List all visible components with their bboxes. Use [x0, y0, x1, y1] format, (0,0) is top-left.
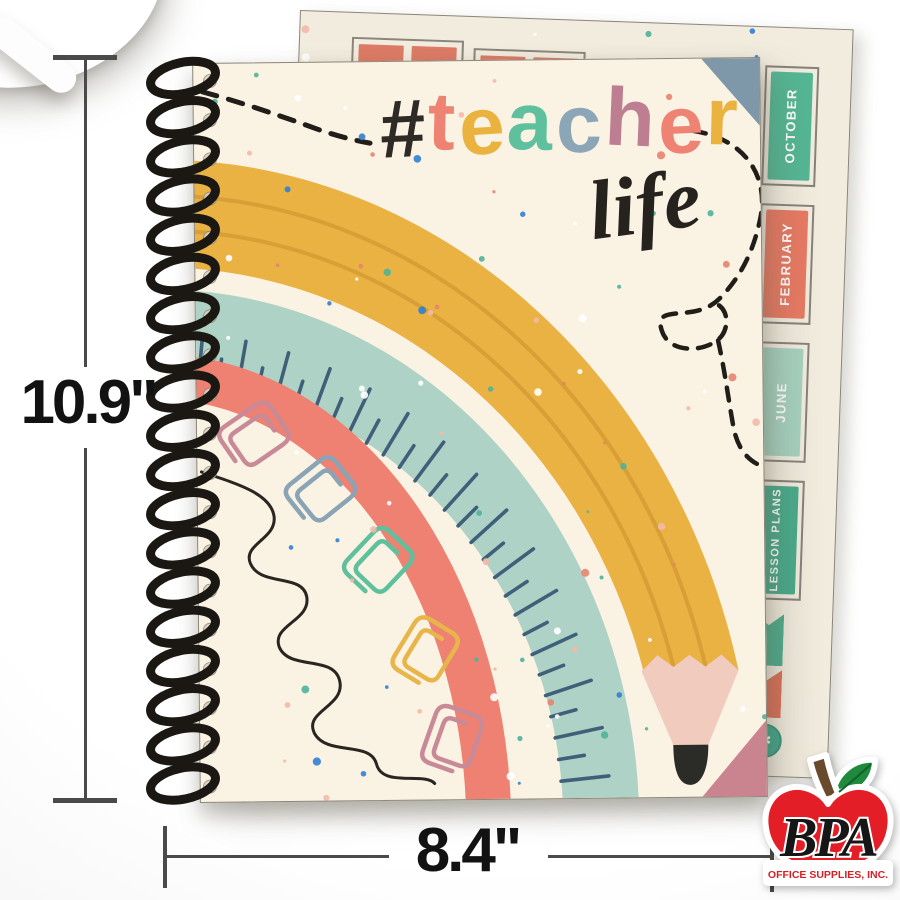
product-photo-stage: { "scene": { "description": "Spiral-boun… — [0, 0, 900, 900]
month-tab-label: LESSON PLANS — [768, 488, 784, 592]
month-tab-label: FEBRUARY — [776, 222, 794, 306]
month-tab-fill: JUNE — [758, 347, 804, 456]
height-dimension-line — [84, 448, 87, 800]
pencil-tip — [673, 745, 708, 785]
logo-tagline: OFFICE SUPPLIES, INC. — [768, 869, 888, 881]
title-letter: t — [427, 81, 456, 164]
title-letter: c — [554, 83, 603, 167]
bpa-logo: BPA OFFICE SUPPLIES, INC. — [760, 748, 896, 900]
height-dimension-line — [84, 57, 87, 367]
planner-cover: #teacher life — [192, 57, 768, 803]
width-dimension-line — [548, 855, 772, 858]
height-dimension-cap-bottom — [53, 798, 117, 803]
month-tab-fill: FEBRUARY — [763, 209, 809, 318]
month-tab-label: JUNE — [772, 381, 788, 422]
month-tab: FEBRUARY — [756, 203, 814, 325]
title-letter: h — [603, 76, 656, 160]
width-dimension-line — [167, 855, 389, 858]
month-tab: OCTOBER — [761, 65, 819, 187]
month-tab-label: OCTOBER — [781, 88, 799, 164]
title-letter: e — [456, 85, 507, 170]
cover-title-hashtag: #teacher — [343, 78, 768, 164]
month-tab-fill: OCTOBER — [767, 71, 813, 180]
title-letter: r — [705, 76, 739, 159]
height-dimension-label: 10.9" — [8, 372, 168, 434]
title-letter: # — [378, 88, 427, 172]
width-dimension-label: 8.4" — [390, 820, 545, 882]
dashed-doodle-tail — [718, 340, 764, 467]
title-letter: a — [506, 81, 554, 164]
pencil-wood — [641, 654, 739, 745]
logo-name: BPA — [779, 807, 877, 869]
